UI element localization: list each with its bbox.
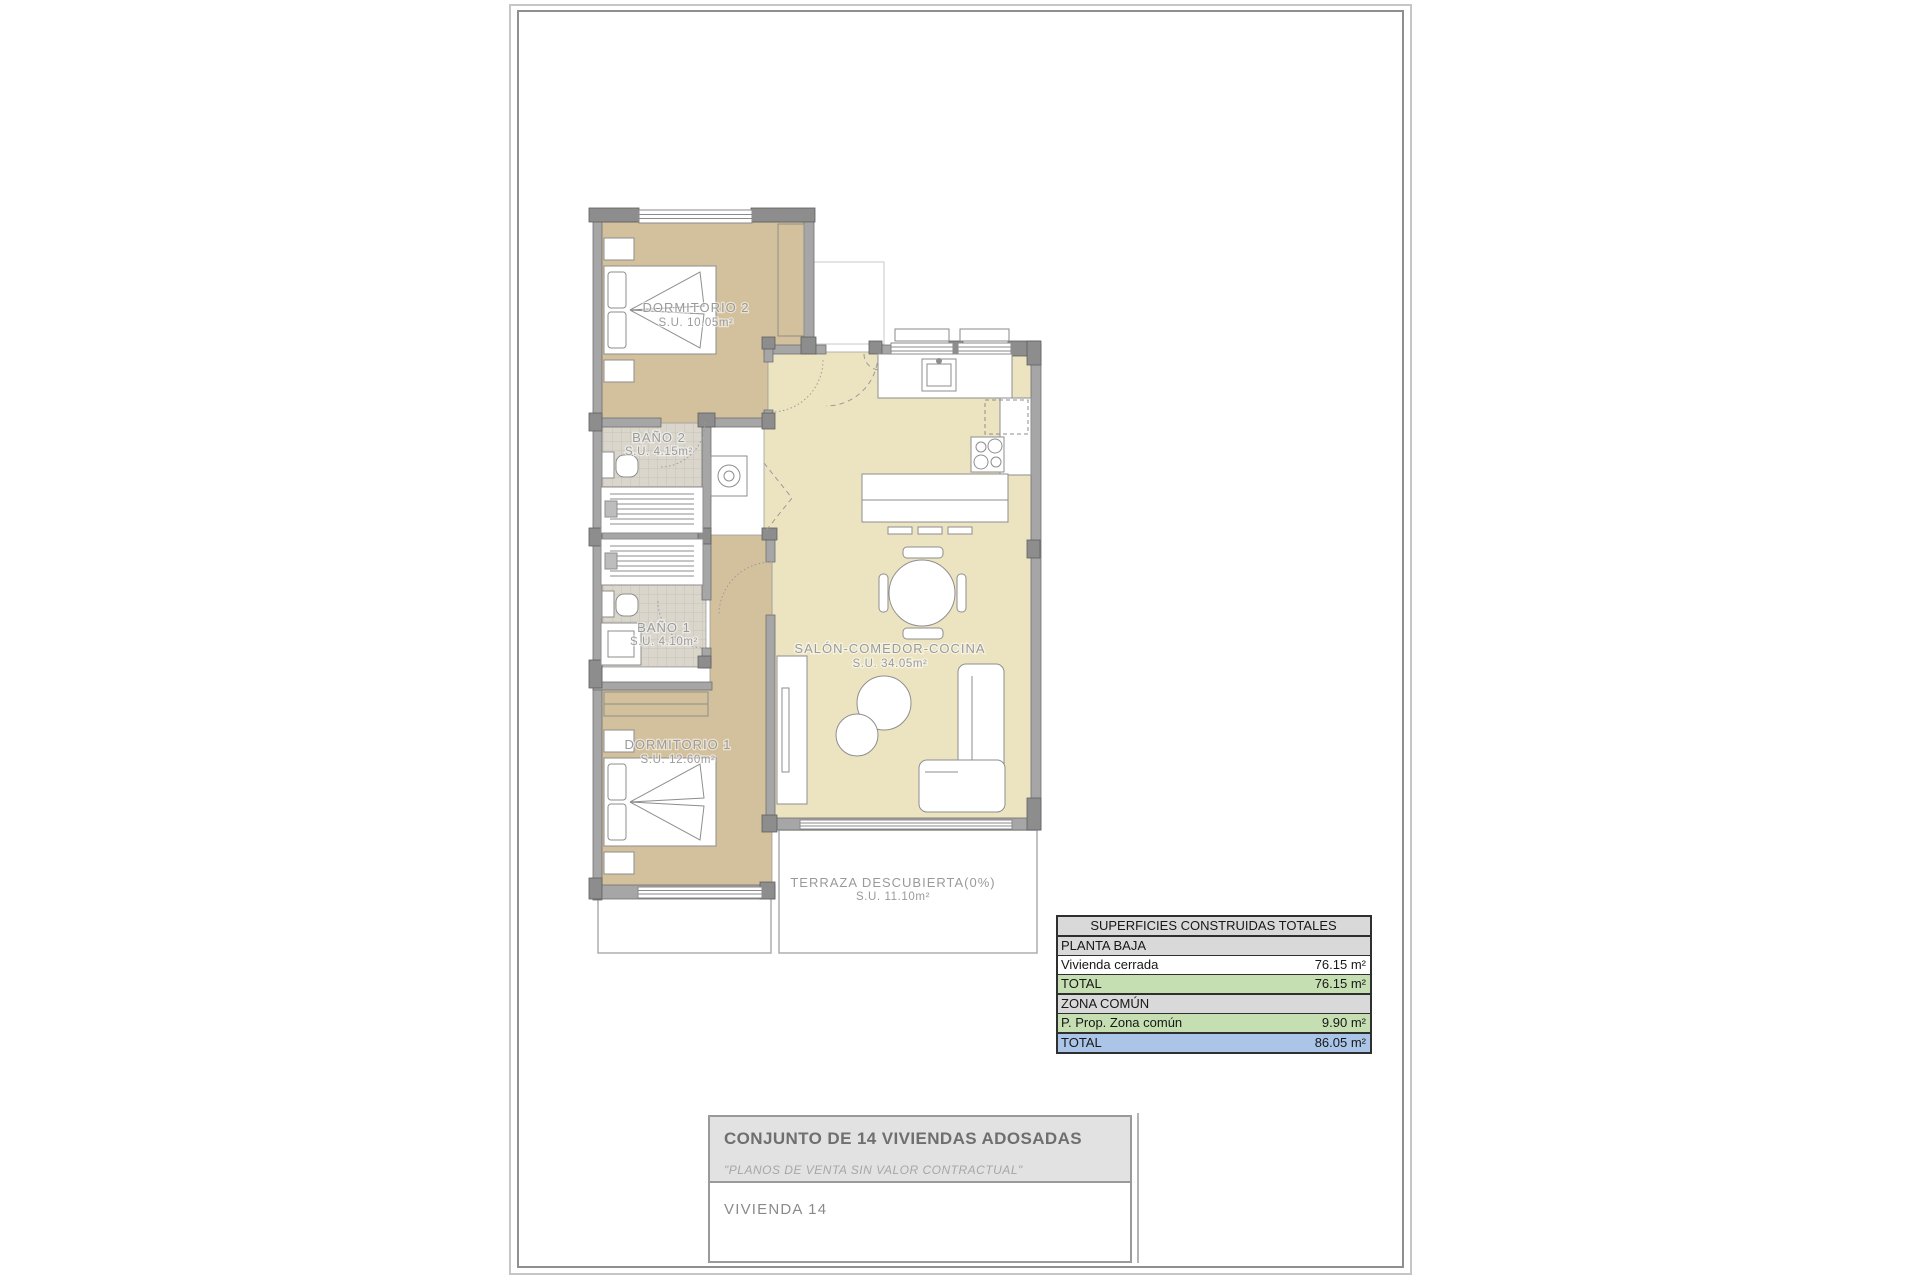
table-row: ZONA COMÚN bbox=[1058, 995, 1370, 1014]
bar-stool bbox=[918, 527, 942, 534]
table-row: P. Prop. Zona común 9.90 m² bbox=[1058, 1014, 1370, 1034]
area-dormitorio-2: S.U. 10.05m² bbox=[659, 317, 734, 329]
title-block: CONJUNTO DE 14 VIVIENDAS ADOSADAS "PLANO… bbox=[708, 1115, 1132, 1263]
table-row: TOTAL 76.15 m² bbox=[1058, 975, 1370, 995]
table-row: Vivienda cerrada 76.15 m² bbox=[1058, 956, 1370, 975]
window-kitchen-2 bbox=[958, 343, 1011, 355]
floor-plan: DORMITORIO 2 S.U. 10.05m² BAÑO 2 S.U. 4.… bbox=[555, 185, 1065, 975]
area-salon: S.U. 34.05m² bbox=[853, 658, 928, 670]
kitchen-counter-right bbox=[1000, 398, 1031, 475]
area-bano-2: S.U. 4.15m² bbox=[625, 446, 693, 458]
row-value: 86.05 m² bbox=[1315, 1034, 1366, 1052]
unit-label: VIVIENDA 14 bbox=[710, 1183, 1130, 1218]
pouf-small bbox=[836, 714, 878, 756]
row-label: ZONA COMÚN bbox=[1061, 995, 1149, 1013]
bar-stool bbox=[948, 527, 972, 534]
washing-machine bbox=[711, 456, 747, 496]
window-kitchen-1 bbox=[891, 343, 953, 355]
window-dormitorio-1 bbox=[638, 887, 762, 898]
plan-sheet: DORMITORIO 2 S.U. 10.05m² BAÑO 2 S.U. 4.… bbox=[0, 0, 1920, 1280]
window-dormitorio-2 bbox=[639, 210, 752, 223]
row-value: 76.15 m² bbox=[1315, 975, 1366, 993]
row-label: TOTAL bbox=[1061, 975, 1102, 993]
area-dormitorio-1: S.U. 12.60m² bbox=[641, 754, 716, 766]
kitchen-island bbox=[862, 474, 1008, 522]
table-row: PLANTA BAJA bbox=[1058, 937, 1370, 956]
sofa-chaise bbox=[919, 760, 1005, 812]
row-label: P. Prop. Zona común bbox=[1061, 1014, 1182, 1032]
row-value: 76.15 m² bbox=[1315, 956, 1366, 974]
table-row: TOTAL 86.05 m² bbox=[1058, 1034, 1370, 1052]
row-label: PLANTA BAJA bbox=[1061, 937, 1146, 955]
window-sill-2 bbox=[960, 329, 1009, 341]
terrace-slider bbox=[800, 820, 1012, 829]
surfaces-table-title: SUPERFICIES CONSTRUIDAS TOTALES bbox=[1058, 917, 1370, 937]
row-value: 9.90 m² bbox=[1322, 1014, 1366, 1032]
label-bano-2: BAÑO 2 bbox=[632, 430, 686, 445]
surfaces-table-title-text: SUPERFICIES CONSTRUIDAS TOTALES bbox=[1090, 917, 1336, 935]
label-dormitorio-2: DORMITORIO 2 bbox=[642, 300, 749, 315]
surfaces-table: SUPERFICIES CONSTRUIDAS TOTALES PLANTA B… bbox=[1056, 915, 1372, 1054]
project-title: CONJUNTO DE 14 VIVIENDAS ADOSADAS bbox=[724, 1129, 1130, 1149]
title-block-divider bbox=[1137, 1113, 1139, 1263]
porch-area bbox=[598, 898, 771, 953]
title-block-header: CONJUNTO DE 14 VIVIENDAS ADOSADAS "PLANO… bbox=[710, 1117, 1130, 1183]
label-salon: SALÓN-COMEDOR-COCINA bbox=[794, 641, 985, 656]
bar-stool bbox=[888, 527, 912, 534]
window-sill-1 bbox=[895, 329, 949, 341]
area-terraza: S.U. 11.10m² bbox=[856, 891, 930, 903]
label-bano-1: BAÑO 1 bbox=[637, 620, 691, 635]
row-label: Vivienda cerrada bbox=[1061, 956, 1158, 974]
row-label: TOTAL bbox=[1061, 1034, 1102, 1052]
label-dormitorio-1: DORMITORIO 1 bbox=[624, 737, 731, 752]
area-bano-1: S.U. 4.10m² bbox=[630, 636, 698, 648]
label-terraza: TERRAZA DESCUBIERTA(0%) bbox=[790, 875, 995, 890]
disclaimer-text: "PLANOS DE VENTA SIN VALOR CONTRACTUAL" bbox=[724, 1163, 1130, 1177]
